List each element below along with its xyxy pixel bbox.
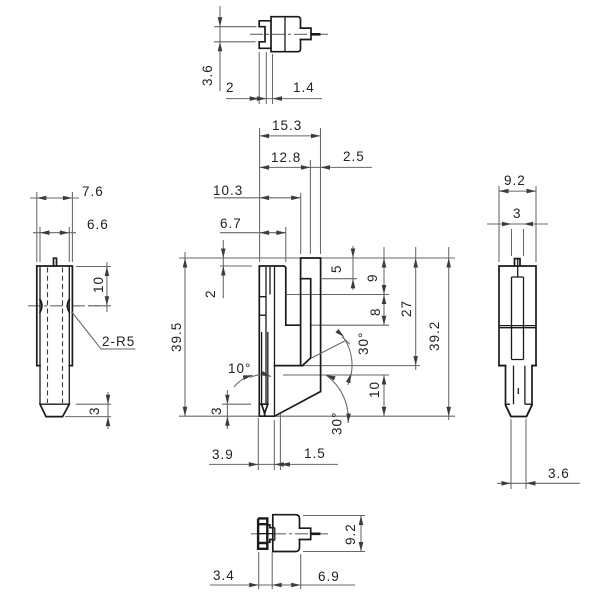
svg-text:12.8: 12.8	[271, 150, 301, 165]
svg-text:2: 2	[226, 80, 235, 95]
svg-text:9: 9	[365, 273, 380, 282]
svg-text:6.6: 6.6	[87, 217, 109, 232]
svg-text:6.9: 6.9	[318, 569, 340, 584]
svg-text:39.5: 39.5	[169, 322, 184, 352]
svg-text:5: 5	[329, 264, 344, 273]
svg-text:39.2: 39.2	[427, 321, 442, 351]
svg-text:2: 2	[203, 289, 218, 298]
svg-text:15.3: 15.3	[272, 118, 302, 133]
svg-text:3: 3	[87, 406, 102, 415]
svg-text:30°: 30°	[356, 332, 371, 355]
svg-text:3.4: 3.4	[213, 568, 235, 583]
svg-text:6.7: 6.7	[220, 216, 242, 231]
svg-text:3.9: 3.9	[212, 447, 234, 462]
svg-text:9.2: 9.2	[343, 523, 358, 545]
svg-text:7.6: 7.6	[82, 184, 104, 199]
svg-text:3: 3	[209, 406, 224, 415]
svg-text:3.6: 3.6	[548, 466, 570, 481]
svg-text:2.5: 2.5	[343, 149, 365, 164]
svg-text:30°: 30°	[330, 412, 345, 435]
svg-text:27: 27	[399, 300, 414, 317]
svg-text:10: 10	[91, 276, 106, 293]
svg-text:9.2: 9.2	[504, 173, 526, 188]
svg-text:2-R5: 2-R5	[102, 334, 135, 349]
svg-text:3.6: 3.6	[200, 64, 215, 86]
svg-text:10: 10	[367, 381, 382, 398]
svg-text:8: 8	[368, 307, 383, 316]
svg-text:10.3: 10.3	[213, 183, 243, 198]
svg-text:3: 3	[513, 206, 522, 221]
svg-text:1.4: 1.4	[293, 80, 315, 95]
svg-text:10°: 10°	[228, 361, 251, 376]
svg-text:1.5: 1.5	[304, 446, 326, 461]
